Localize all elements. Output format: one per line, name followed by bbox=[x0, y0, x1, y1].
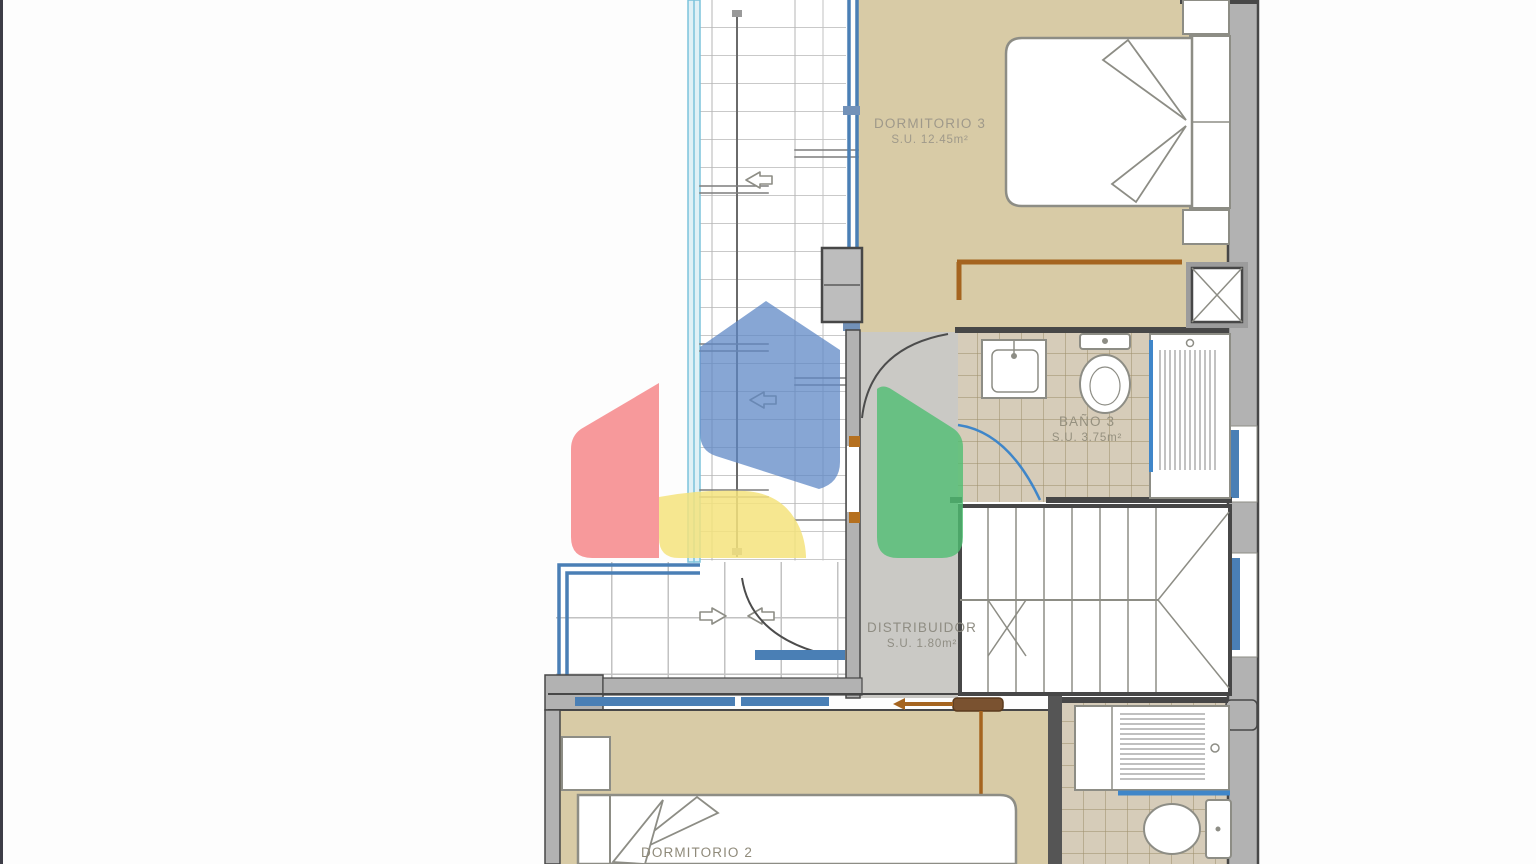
house-logo bbox=[571, 301, 963, 558]
logo-right-green bbox=[877, 387, 963, 559]
image-edge-line bbox=[0, 0, 3, 864]
logo-left-red bbox=[571, 383, 659, 558]
logo-base-yellow bbox=[659, 491, 806, 558]
watermark-logo bbox=[0, 0, 1536, 864]
logo-roof-blue bbox=[700, 301, 840, 489]
floorplan-image: DORMITORIO 3 S.U. 12.45m² BAÑO 3 S.U. 3.… bbox=[0, 0, 1536, 864]
